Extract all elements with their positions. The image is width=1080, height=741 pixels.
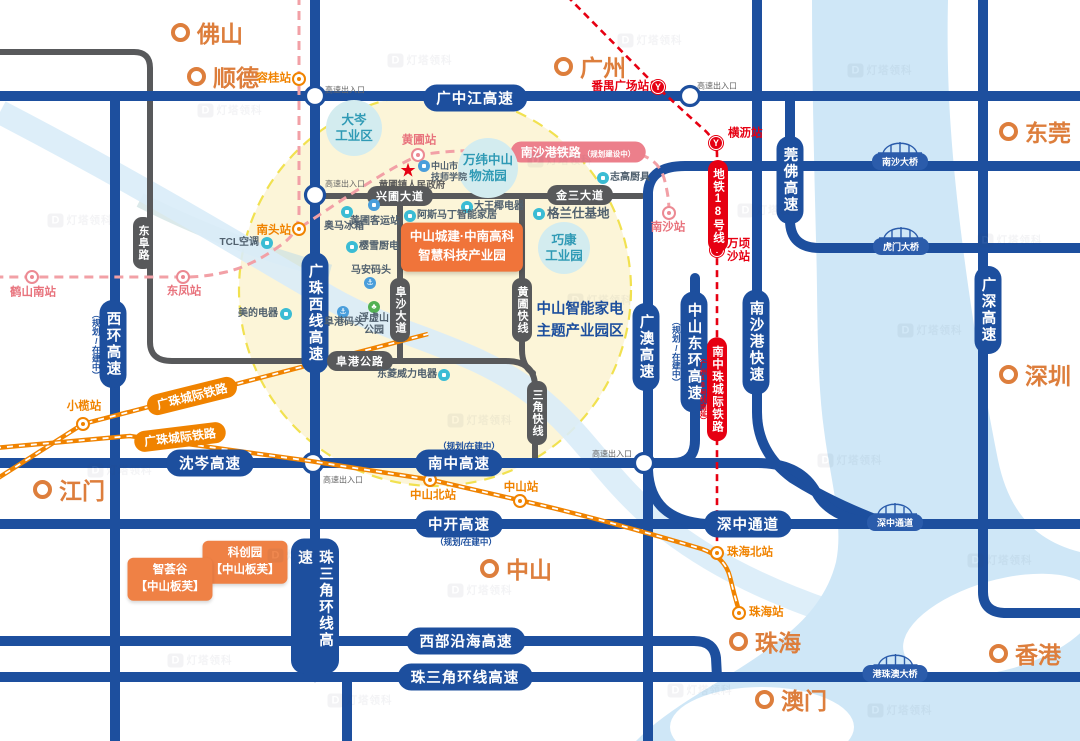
poi-icon	[261, 237, 273, 249]
city-name: 佛山	[197, 15, 243, 49]
watermark: D灯塔领科	[88, 463, 153, 478]
watermark-logo: D	[868, 703, 884, 717]
project-badge: 智荟谷【中山板芙】	[128, 558, 213, 601]
watermark: D灯塔领科	[978, 233, 1043, 248]
station-label: 珠海站	[749, 606, 784, 619]
station-label: 南头站	[257, 224, 292, 237]
station-label: 珠海北站	[727, 546, 773, 559]
highway-label: 西部沿海高速	[407, 628, 526, 655]
city-label: 香港	[989, 639, 1061, 667]
highway-status-note: （规划/在建中）	[92, 310, 101, 380]
city-ring-icon	[33, 480, 52, 499]
map-canvas: 佛山顺德广州东莞深圳江门中山珠海香港澳门容桂站南头站小榄站中山北站中山站珠海北站…	[0, 0, 1080, 741]
railway-label: 广珠城际铁路	[133, 421, 227, 453]
poi-icon	[404, 210, 416, 222]
station-label: 东凤站	[167, 285, 202, 298]
highway-label: 广深高速	[975, 266, 1002, 354]
city-ring-icon	[171, 23, 190, 42]
watermark: D灯塔领科	[388, 53, 453, 68]
watermark-text: 灯塔领科	[887, 703, 933, 718]
watermark-logo: D	[448, 413, 464, 427]
poi-label: 樱雪厨电	[359, 241, 399, 253]
poi-label: 阿斯马丁智能家居	[417, 210, 497, 222]
watermark-text: 灯塔领科	[997, 233, 1043, 248]
watermark-logo: D	[738, 203, 754, 217]
bridge-label: 深中通道	[867, 500, 923, 531]
watermark-text: 灯塔领科	[467, 413, 513, 428]
watermark-text: 灯塔领科	[217, 103, 263, 118]
watermark-text: 灯塔领科	[287, 548, 333, 563]
watermark: D灯塔领科	[898, 323, 963, 338]
city-name: 珠海	[755, 624, 801, 658]
city-name: 广州	[580, 49, 626, 83]
watermark-logo: D	[968, 553, 984, 567]
watermark: D灯塔领科	[168, 653, 233, 668]
highway-label: 广中江高速	[423, 85, 527, 112]
watermark: D灯塔领科	[328, 693, 393, 708]
poi-label: 格兰仕基地	[547, 207, 610, 222]
station-icon	[651, 80, 665, 94]
bridge-icon	[872, 651, 918, 666]
watermark-text: 灯塔领科	[547, 153, 593, 168]
poi-label: 黄圃客运站	[350, 216, 400, 228]
poi-icon	[280, 308, 292, 320]
city-name: 顺德	[213, 59, 259, 93]
bridge-icon	[872, 500, 918, 515]
highway-label: 南中高速	[415, 450, 503, 477]
watermark-logo: D	[568, 293, 584, 307]
poi-label: TCL空调	[220, 237, 259, 249]
road-label: 黄圃快线	[512, 278, 532, 342]
poi-icon	[418, 160, 430, 172]
watermark-text: 灯塔领科	[187, 653, 233, 668]
watermark: D灯塔领科	[668, 683, 733, 698]
highway-exit-label: 高速出入口	[325, 179, 365, 190]
watermark: D灯塔领科	[968, 553, 1033, 568]
city-label: 顺德	[187, 62, 259, 90]
watermark-logo: D	[668, 683, 684, 697]
city-ring-icon	[554, 57, 573, 76]
watermark-logo: D	[328, 693, 344, 707]
city-name: 东莞	[1025, 114, 1071, 148]
watermark-text: 灯塔领科	[837, 453, 883, 468]
poi-icon	[438, 369, 450, 381]
government-label: 黄圃镇人民政府	[379, 177, 446, 191]
poi-icon	[368, 199, 380, 211]
watermark-logo: D	[88, 463, 104, 477]
city-ring-icon	[729, 632, 748, 651]
station-icon	[76, 417, 90, 431]
city-label: 江门	[33, 475, 105, 503]
industry-zone-circle: 大岑工业区	[326, 100, 382, 156]
station-label: 黄圃站	[402, 134, 437, 147]
station-label: 万顷沙站	[727, 238, 757, 264]
station-icon	[292, 222, 306, 236]
poi-label: 志高厨具	[610, 172, 650, 184]
station-icon	[513, 494, 527, 508]
highway-exit-label: 高速出入口	[697, 81, 737, 92]
station-label: 番禺广场站	[592, 80, 650, 93]
road-label: 阜港公路	[327, 351, 393, 371]
city-ring-icon	[187, 67, 206, 86]
watermark: D灯塔领科	[568, 293, 633, 308]
watermark-logo: D	[198, 103, 214, 117]
highway-label: 南沙港快速	[743, 290, 770, 395]
watermark-text: 灯塔领科	[107, 463, 153, 478]
watermark-text: 灯塔领科	[67, 213, 113, 228]
highway-label: 广珠西线高速	[302, 253, 329, 374]
poi-label: 马安码头	[351, 265, 391, 277]
highway-label: 珠三角环线高速	[398, 664, 533, 691]
poi-label: 阜港码头	[324, 317, 364, 329]
watermark-text: 灯塔领科	[987, 553, 1033, 568]
station-icon	[709, 136, 723, 150]
station-label: 中山北站	[410, 489, 456, 502]
city-name: 深圳	[1025, 357, 1071, 391]
poi-label: 美的电器	[238, 308, 278, 320]
bridge-name: 港珠澳大桥	[862, 665, 927, 682]
highway-exit-label: 高速出入口	[323, 475, 363, 486]
highway-status-note: （规划/在建中）	[438, 440, 500, 452]
poi-icon	[597, 172, 609, 184]
watermark: D灯塔领科	[528, 153, 593, 168]
railway-status-note: （广州18号线南延）	[700, 354, 707, 424]
station-icon	[732, 606, 746, 620]
city-label: 珠海	[729, 627, 801, 655]
highway-label: 中开高速	[415, 511, 503, 538]
bridge-icon	[878, 224, 924, 239]
watermark-logo: D	[848, 63, 864, 77]
watermark-text: 灯塔领科	[587, 293, 633, 308]
railway-label: 南中珠城际铁路	[707, 337, 727, 441]
road-label: 金三大道	[547, 185, 613, 205]
watermark-logo: D	[898, 323, 914, 337]
bridge-icon	[877, 139, 923, 154]
highway-label: 广澳高速	[633, 303, 660, 391]
poi-icon	[368, 301, 380, 313]
city-label: 中山	[480, 554, 552, 582]
city-label: 佛山	[171, 18, 243, 46]
station-label: 容桂站	[257, 72, 292, 85]
watermark-text: 灯塔领科	[917, 323, 963, 338]
poi-icon	[364, 277, 376, 289]
station-icon	[662, 206, 676, 220]
bridge-name: 虎门大桥	[873, 238, 929, 255]
highway-label: 深中通道	[704, 511, 792, 538]
city-ring-icon	[989, 644, 1008, 663]
railway-label: 广珠城际铁路	[145, 375, 239, 418]
watermark-logo: D	[618, 33, 634, 47]
poi-label: 浮虚山公园	[359, 313, 389, 337]
highway-label: 沈岑高速	[166, 450, 254, 477]
watermark-text: 灯塔领科	[687, 683, 733, 698]
watermark-logo: D	[168, 653, 184, 667]
watermark-text: 灯塔领科	[467, 583, 513, 598]
watermark: D灯塔领科	[198, 103, 263, 118]
station-label: 南沙站	[651, 221, 686, 234]
bridge-label: 南沙大桥	[872, 139, 928, 170]
city-label: 深圳	[999, 360, 1071, 388]
watermark-text: 灯塔领科	[347, 693, 393, 708]
watermark-logo: D	[388, 53, 404, 67]
railway-label: 地铁18号线	[708, 160, 728, 252]
city-ring-icon	[480, 559, 499, 578]
road-label: 阜沙大道	[390, 278, 410, 342]
watermark: D灯塔领科	[618, 33, 683, 48]
city-ring-icon	[755, 690, 774, 709]
watermark-text: 灯塔领科	[637, 33, 683, 48]
city-label: 东莞	[999, 117, 1071, 145]
map-labels-layer: 佛山顺德广州东莞深圳江门中山珠海香港澳门容桂站南头站小榄站中山北站中山站珠海北站…	[0, 0, 1080, 741]
poi-label: 东菱威力电器	[377, 369, 437, 381]
city-name: 中山	[506, 551, 552, 585]
station-label: 横沥站	[728, 127, 763, 140]
watermark-logo: D	[528, 153, 544, 167]
watermark-logo: D	[978, 233, 994, 247]
watermark-text: 灯塔领科	[757, 203, 803, 218]
city-name: 澳门	[781, 682, 827, 716]
station-icon	[176, 270, 190, 284]
watermark: D灯塔领科	[448, 583, 513, 598]
highway-exit-label: 高速出入口	[592, 449, 632, 460]
station-icon	[292, 72, 306, 86]
watermark: D灯塔领科	[868, 703, 933, 718]
road-label: 三角快线	[527, 381, 547, 445]
city-name: 香港	[1015, 636, 1061, 670]
station-label: 鹤山南站	[10, 286, 56, 299]
city-label: 澳门	[755, 685, 827, 713]
bridge-label: 港珠澳大桥	[862, 651, 927, 682]
watermark: D灯塔领科	[48, 213, 113, 228]
station-label: 小榄站	[67, 400, 102, 413]
city-label: 广州	[554, 52, 626, 80]
watermark: D灯塔领科	[848, 63, 913, 78]
watermark-text: 灯塔领科	[407, 53, 453, 68]
watermark: D灯塔领科	[738, 203, 803, 218]
poi-icon	[346, 241, 358, 253]
highway-exit-label: 高速出入口	[325, 85, 365, 96]
watermark: D灯塔领科	[448, 413, 513, 428]
watermark-text: 灯塔领科	[867, 63, 913, 78]
watermark: D灯塔领科	[818, 453, 883, 468]
city-ring-icon	[999, 365, 1018, 384]
bridge-label: 虎门大桥	[873, 224, 929, 255]
watermark-logo: D	[268, 548, 284, 562]
project-badge: 中山城建·中南高科智慧科技产业园	[401, 223, 523, 272]
station-label: 中山站	[504, 481, 539, 494]
highway-status-note: （规划/在建中）	[672, 317, 681, 387]
station-icon	[25, 270, 39, 284]
watermark-logo: D	[818, 453, 834, 467]
bridge-name: 南沙大桥	[872, 153, 928, 170]
highway-status-note: （规划/在建中）	[435, 536, 497, 548]
watermark: D灯塔领科	[268, 548, 333, 563]
industry-zone-circle: 巧康工业园	[538, 222, 590, 274]
city-ring-icon	[999, 122, 1018, 141]
bridge-name: 深中通道	[867, 514, 923, 531]
highway-label: 西环高速	[100, 300, 127, 388]
watermark-logo: D	[48, 213, 64, 227]
road-label: 东阜路	[133, 217, 153, 269]
station-icon	[710, 546, 724, 560]
poi-icon	[533, 208, 545, 220]
watermark-logo: D	[448, 583, 464, 597]
